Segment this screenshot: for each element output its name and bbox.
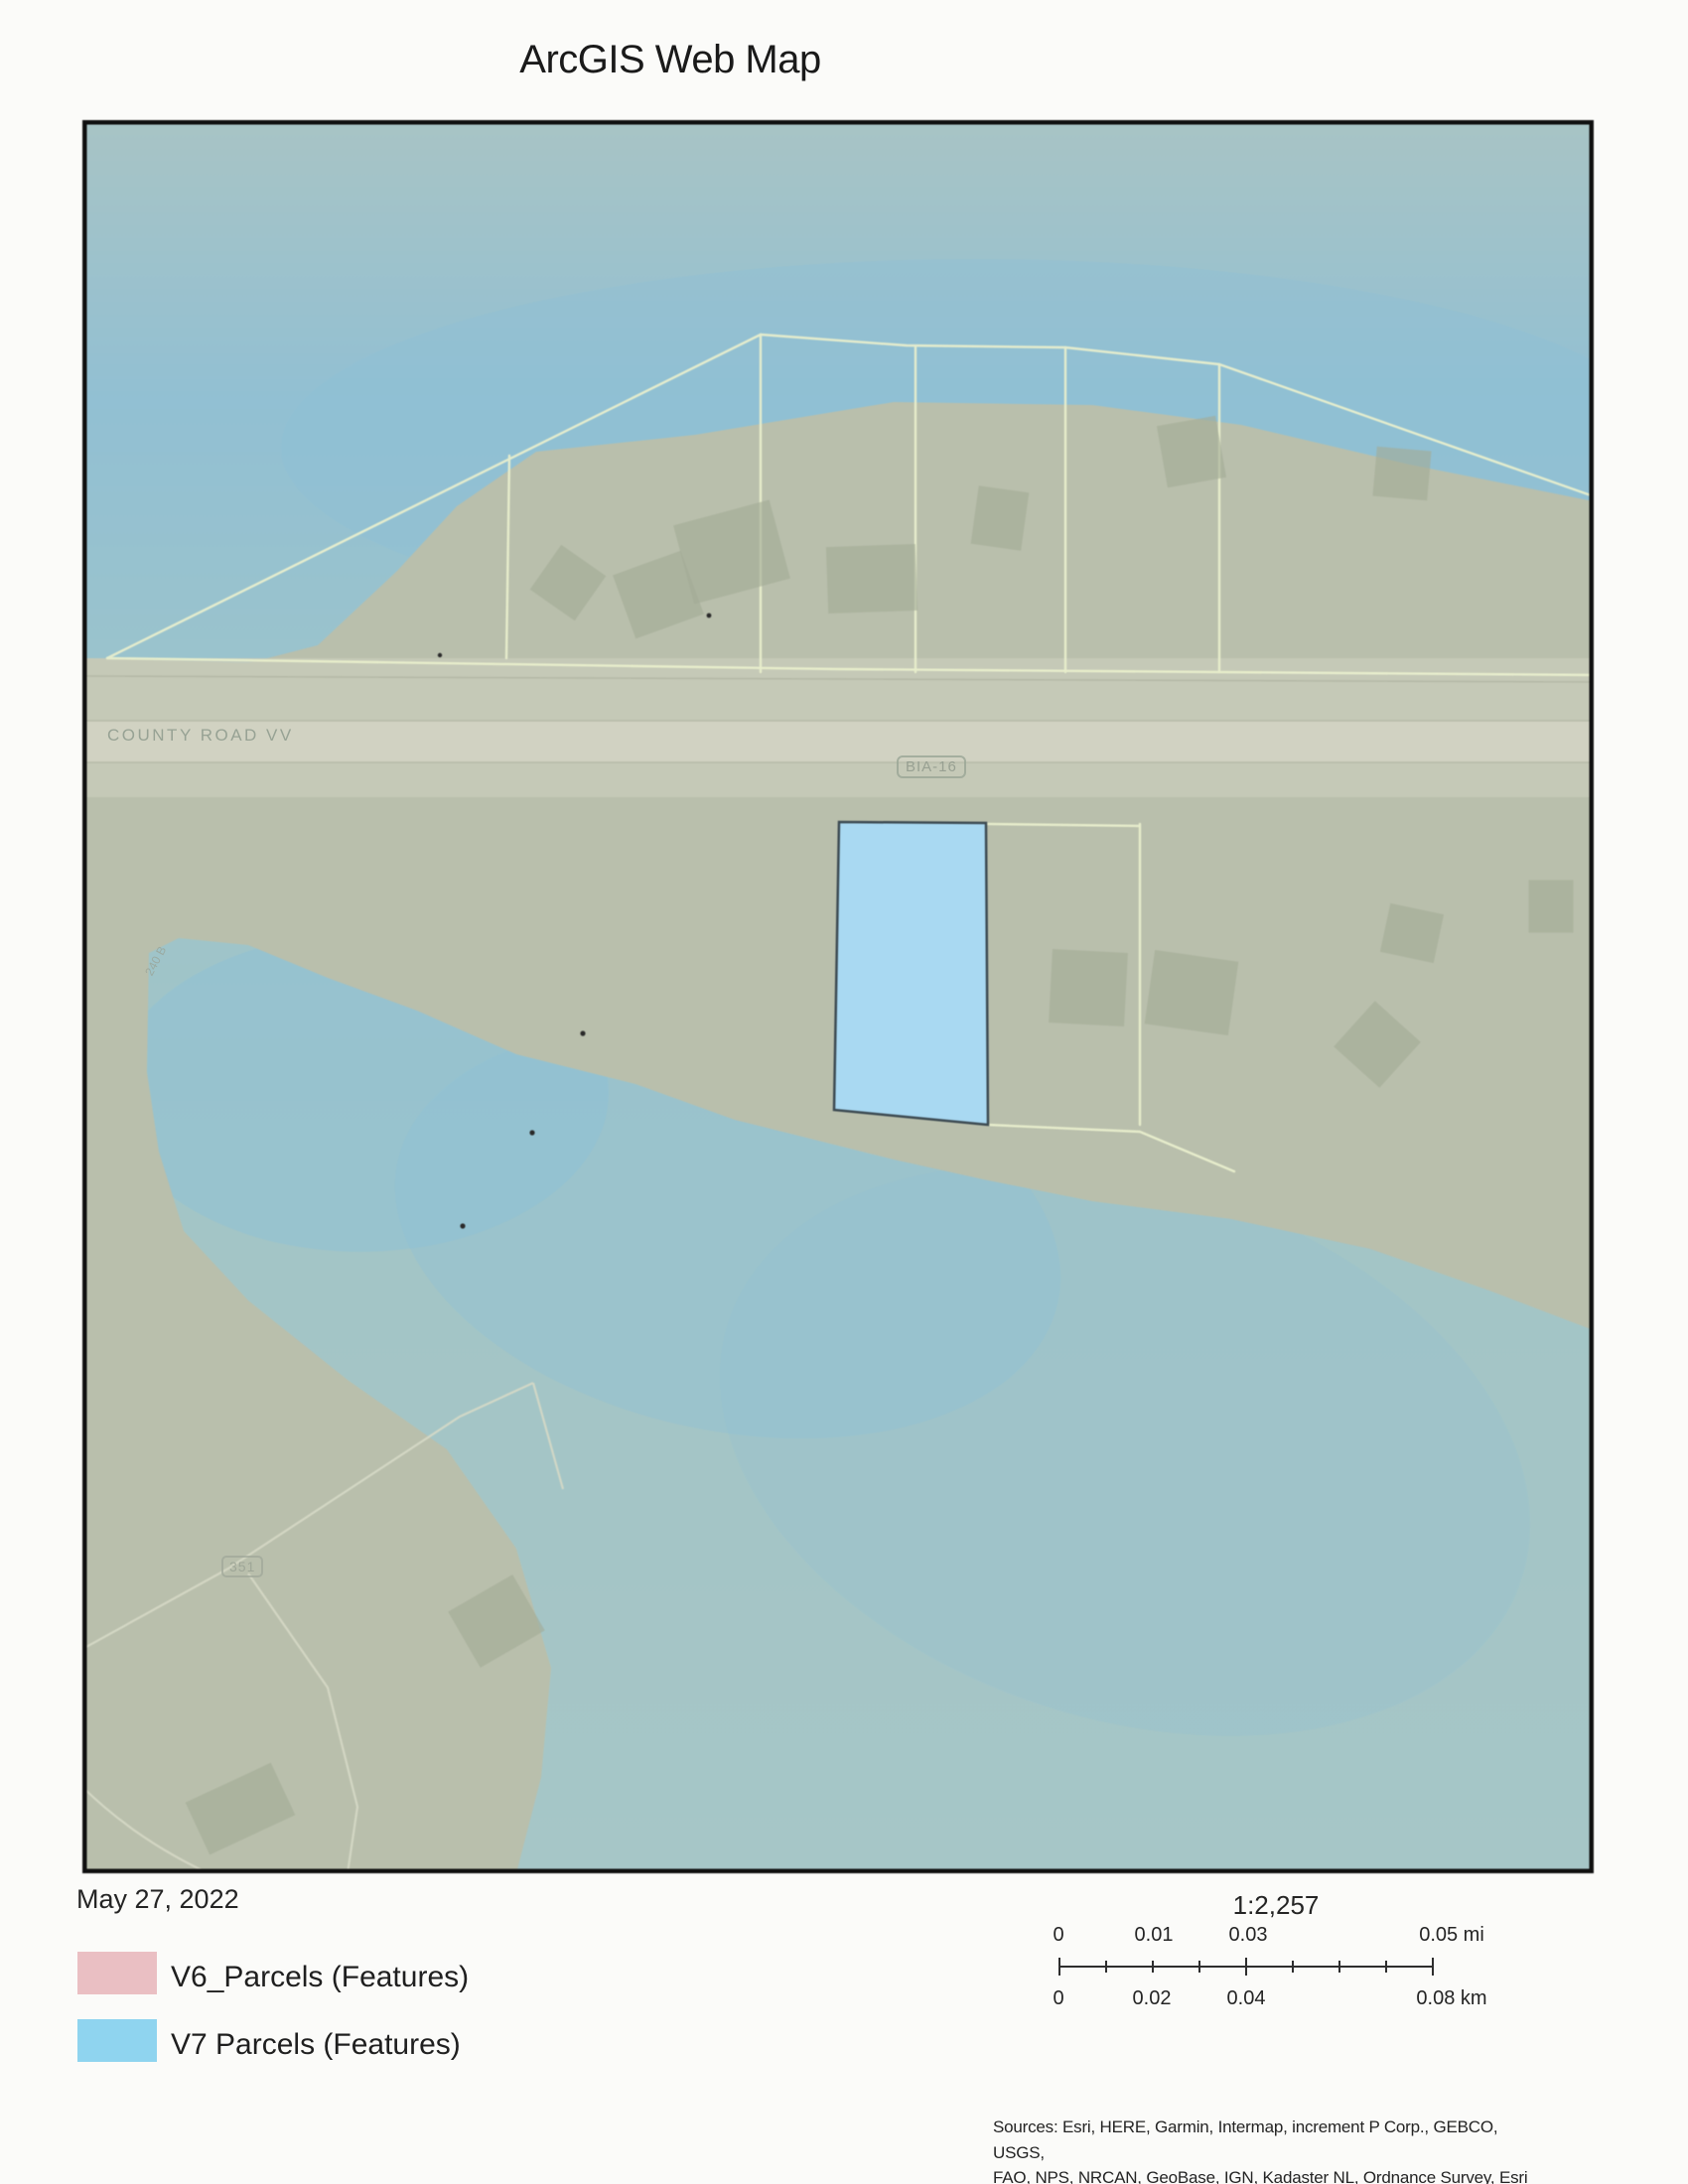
km-tick-0: 0 (1053, 1987, 1063, 2010)
mi-tick-0: 0 (1053, 1924, 1063, 1947)
sources-line2: FAO, NPS, NRCAN, GeoBase, IGN, Kadaster … (993, 2165, 1549, 2184)
km-tick-002: 0.02 (1133, 1987, 1172, 2010)
highlighted-parcel[interactable] (834, 822, 988, 1125)
road-shield-351: 351 (221, 1556, 263, 1577)
map-date: May 27, 2022 (76, 1884, 239, 1915)
legend-label-v7: V7 Parcels (Features) (171, 2028, 461, 2062)
scale-ratio: 1:2,257 (1177, 1890, 1375, 1921)
map-image (82, 120, 1594, 1873)
sources-attribution: Sources: Esri, HERE, Garmin, Intermap, i… (993, 2115, 1549, 2184)
page-title: ArcGIS Web Map (372, 38, 968, 82)
scalebar (1058, 1956, 1436, 1978)
km-tick-008: 0.08 km (1416, 1987, 1486, 2010)
legend-item-v7-parcels: V7 Parcels (Features) (77, 2019, 574, 2069)
road-label-county-road-vv: COUNTY ROAD VV (107, 726, 294, 746)
mi-tick-005: 0.05 mi (1419, 1924, 1484, 1947)
scalebar-km-labels: 0 0.02 0.04 0.08 km (0, 1987, 1688, 2011)
mi-tick-003: 0.03 (1229, 1924, 1268, 1947)
sources-line1: Sources: Esri, HERE, Garmin, Intermap, i… (993, 2115, 1549, 2165)
road-shield-bia-16: BIA-16 (897, 755, 966, 778)
map-canvas[interactable]: COUNTY ROAD VV BIA-16 351 240 B (82, 120, 1594, 1873)
km-tick-004: 0.04 (1227, 1987, 1266, 2010)
page: ArcGIS Web Map (0, 0, 1688, 2184)
legend-swatch-v7 (77, 2019, 157, 2062)
scalebar-miles-labels: 0 0.01 0.03 0.05 mi (0, 1924, 1688, 1948)
road-surface (82, 721, 1594, 762)
mi-tick-001: 0.01 (1135, 1924, 1174, 1947)
